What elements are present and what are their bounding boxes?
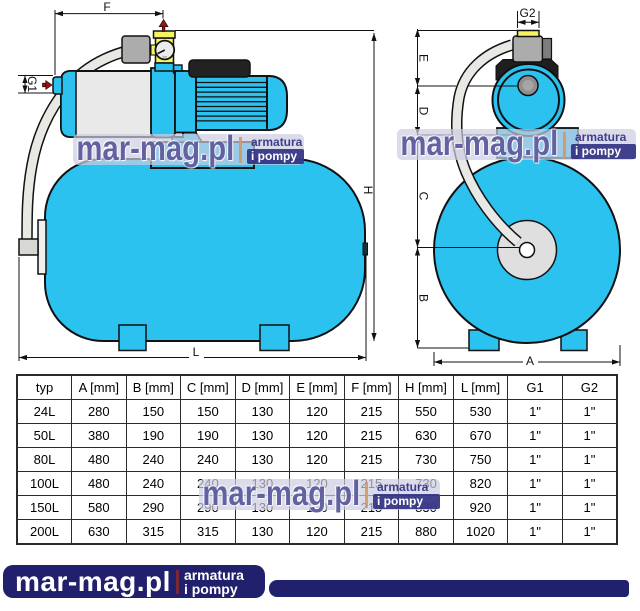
svg-text:D: D bbox=[417, 107, 431, 116]
svg-text:B: B bbox=[417, 294, 431, 302]
svg-text:G2: G2 bbox=[519, 6, 535, 20]
svg-text:E: E bbox=[417, 54, 431, 62]
svg-text:F: F bbox=[103, 0, 110, 14]
svg-text:L: L bbox=[193, 345, 200, 359]
svg-text:H: H bbox=[361, 186, 375, 195]
svg-text:C: C bbox=[417, 192, 431, 201]
svg-text:A: A bbox=[526, 354, 534, 368]
svg-text:bar: bar bbox=[163, 55, 167, 59]
svg-text:G1: G1 bbox=[25, 76, 39, 92]
